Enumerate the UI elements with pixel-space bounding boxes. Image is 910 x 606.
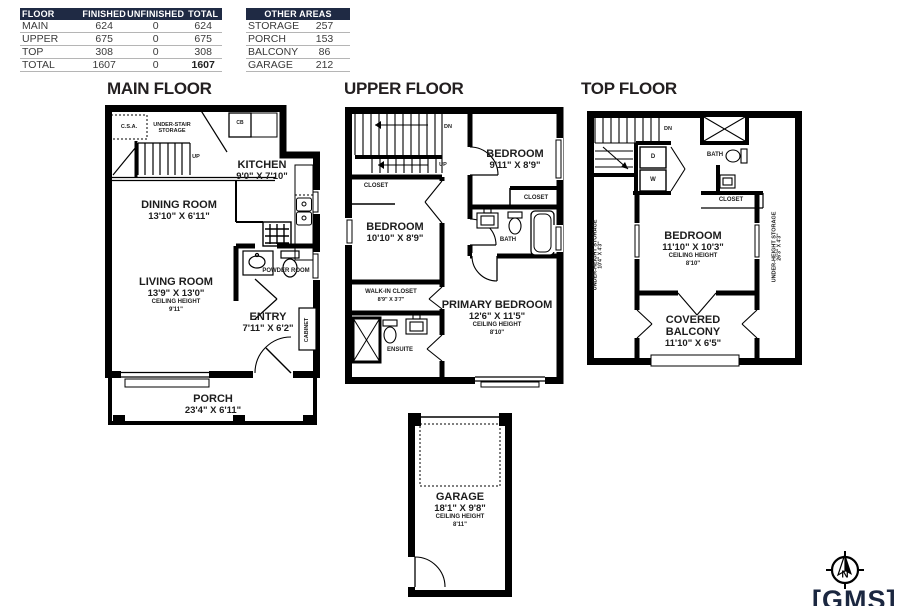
entry-name: ENTRY xyxy=(242,311,293,323)
cell: 308 xyxy=(81,46,127,58)
cell: 257 xyxy=(299,20,350,32)
walkin-name: WALK-IN CLOSET xyxy=(365,289,417,297)
storage-left-dims: 10'4" X 4'3" xyxy=(598,220,604,291)
cb-label: CB xyxy=(236,121,243,127)
dining-room-label: DINING ROOM 13'10" X 6'11" xyxy=(141,199,217,222)
bedroom-ceiling-value: 8'10" xyxy=(662,261,724,269)
col-floor: FLOOR xyxy=(20,9,81,19)
garage-ceiling-value: 8'11" xyxy=(434,522,486,530)
compass-n-label: N xyxy=(841,570,848,581)
table-row: TOP 308 0 308 xyxy=(20,46,222,59)
living-ceiling-value: 9'11" xyxy=(139,307,213,315)
up-label: UP xyxy=(192,154,200,160)
floor-plan-page: FLOOR FINISHED UNFINISHED TOTAL MAIN 624… xyxy=(0,0,910,606)
bedroom-dims: 11'10" X 10'3" xyxy=(662,242,724,253)
bedroom1-dims: 9'11" X 8'9" xyxy=(486,160,543,171)
entry-dims: 7'11" X 6'2" xyxy=(242,323,293,334)
living-ceiling-label: CEILING HEIGHT xyxy=(139,299,213,307)
stove xyxy=(263,222,291,246)
cell: GARAGE xyxy=(246,59,299,71)
balcony-name: COVERED BALCONY xyxy=(653,314,733,338)
garage-overhang xyxy=(420,424,500,486)
powder-room-label: POWDER ROOM xyxy=(262,268,309,276)
cell: 0 xyxy=(127,46,184,58)
table-row: BALCONY 86 xyxy=(246,46,350,59)
shower xyxy=(702,115,747,143)
table-row: PORCH 153 xyxy=(246,33,350,46)
closet-label: CLOSET xyxy=(719,197,743,205)
bedroom-ceiling-label: CEILING HEIGHT xyxy=(662,253,724,261)
cell: 212 xyxy=(299,59,350,71)
primary-dims: 12'6" X 11'5" xyxy=(442,311,553,322)
balcony-label: COVERED BALCONY 11'10" X 6'5" xyxy=(653,314,733,349)
cell: BALCONY xyxy=(246,46,299,58)
garage-name: GARAGE xyxy=(434,491,486,503)
cabinet-label: CABINET xyxy=(304,318,310,342)
balcony-steps xyxy=(651,355,739,366)
bedroom2-name: BEDROOM xyxy=(366,221,423,233)
understair-storage-label: UNDER-STAIR STORAGE xyxy=(146,122,198,134)
storage-right-dims: 26'3" X 4'3" xyxy=(777,212,783,283)
bedroom-label: BEDROOM 11'10" X 10'3" CEILING HEIGHT 8'… xyxy=(662,230,724,268)
dryer-label: D xyxy=(651,154,655,162)
main-floor-title: MAIN FLOOR xyxy=(107,79,212,99)
porch-name: PORCH xyxy=(185,393,241,405)
table-row: GARAGE 212 xyxy=(246,59,350,72)
cell: 153 xyxy=(299,33,350,45)
other-areas-header: OTHER AREAS xyxy=(246,8,350,20)
dn-label: DN xyxy=(444,124,452,130)
cell: 0 xyxy=(127,59,184,71)
ensuite-label: ENSUITE xyxy=(387,347,413,355)
cell: PORCH xyxy=(246,33,299,45)
top-floor-title: TOP FLOOR xyxy=(581,79,677,99)
bedroom1-name: BEDROOM xyxy=(486,148,543,160)
cell: 308 xyxy=(184,46,222,58)
balcony-dims: 11'10" X 6'5" xyxy=(653,338,733,349)
porch-label: PORCH 23'4" X 6'11" xyxy=(185,393,241,416)
bathtub xyxy=(531,211,554,255)
primary-ceiling-value: 8'10" xyxy=(442,330,553,338)
storage-left-label: UNDER-HEIGHT STORAGE 10'4" X 4'3" xyxy=(592,220,604,291)
cell: 0 xyxy=(127,33,184,45)
bath-label: BATH xyxy=(500,237,516,245)
other-areas-title: OTHER AREAS xyxy=(246,9,350,19)
gms-logo: [GMS] xyxy=(812,585,896,606)
garage-dims: 18'1" X 9'8" xyxy=(434,503,486,514)
storage-right-label: UNDER-HEIGHT STORAGE 26'3" X 4'3" xyxy=(771,212,783,283)
sink xyxy=(720,175,735,188)
upper-floor-title: UPPER FLOOR xyxy=(344,79,464,99)
bedroom2-dims: 10'10" X 8'9" xyxy=(366,233,423,244)
col-unfinished: UNFINISHED xyxy=(127,9,184,19)
garage-label: GARAGE 18'1" X 9'8" CEILING HEIGHT 8'11" xyxy=(434,491,486,529)
walkin-dims: 8'9" X 3'7" xyxy=(365,297,417,303)
up-label: UP xyxy=(439,162,447,168)
cell: 675 xyxy=(184,33,222,45)
closet-right-label: CLOSET xyxy=(524,195,548,203)
table-row: MAIN 624 0 624 xyxy=(20,20,222,33)
bedroom2-label: BEDROOM 10'10" X 8'9" xyxy=(366,221,423,244)
table-row: UPPER 675 0 675 xyxy=(20,33,222,46)
cell: 86 xyxy=(299,46,350,58)
kitchen-label: KITCHEN 9'0" X 7'10" xyxy=(236,159,288,182)
living-room-window xyxy=(121,369,209,387)
cell: 1607 xyxy=(184,59,222,71)
entry-label: ENTRY 7'11" X 6'2" xyxy=(242,311,293,334)
dn-label: DN xyxy=(664,126,672,132)
bedroom-name: BEDROOM xyxy=(662,230,724,242)
dining-dims: 13'10" X 6'11" xyxy=(141,211,217,222)
primary-ceiling-label: CEILING HEIGHT xyxy=(442,322,553,330)
bath-label: BATH xyxy=(707,152,723,160)
porch-dims: 23'4" X 6'11" xyxy=(185,405,241,416)
cell: 624 xyxy=(81,20,127,32)
cell: 624 xyxy=(184,20,222,32)
cell: TOTAL xyxy=(20,59,81,71)
cell: STORAGE xyxy=(246,20,299,32)
kitchen-name: KITCHEN xyxy=(236,159,288,171)
cell: TOP xyxy=(20,46,81,58)
col-finished: FINISHED xyxy=(81,9,127,19)
table-total-row: TOTAL 1607 0 1607 xyxy=(20,59,222,72)
garage-side-door xyxy=(407,557,445,587)
dining-name: DINING ROOM xyxy=(141,199,217,211)
cell: 675 xyxy=(81,33,127,45)
cell: UPPER xyxy=(20,33,81,45)
cell: 1607 xyxy=(81,59,127,71)
floor-area-table: FLOOR FINISHED UNFINISHED TOTAL MAIN 624… xyxy=(20,8,222,72)
other-areas-table: OTHER AREAS STORAGE 257 PORCH 153 BALCON… xyxy=(246,8,350,72)
living-name: LIVING ROOM xyxy=(139,276,213,288)
walkin-closet-label: WALK-IN CLOSET 8'9" X 3'7" xyxy=(365,289,417,303)
kitchen-dims: 9'0" X 7'10" xyxy=(236,171,288,182)
washer-label: W xyxy=(650,177,656,185)
table-row: STORAGE 257 xyxy=(246,20,350,33)
primary-bedroom-label: PRIMARY BEDROOM 12'6" X 11'5" CEILING HE… xyxy=(442,299,553,337)
closet-left-label: CLOSET xyxy=(364,183,388,191)
bedroom1-label: BEDROOM 9'11" X 8'9" xyxy=(486,148,543,171)
ensuite-shower xyxy=(353,318,380,362)
cell: 0 xyxy=(127,20,184,32)
living-dims: 13'9" X 13'0" xyxy=(139,288,213,299)
cell: MAIN xyxy=(20,20,81,32)
csa-label: C.S.A. xyxy=(121,124,137,130)
col-total: TOTAL xyxy=(184,9,222,19)
living-room-label: LIVING ROOM 13'9" X 13'0" CEILING HEIGHT… xyxy=(139,276,213,314)
garage-ceiling-label: CEILING HEIGHT xyxy=(434,514,486,522)
floor-area-table-header: FLOOR FINISHED UNFINISHED TOTAL xyxy=(20,8,222,20)
primary-name: PRIMARY BEDROOM xyxy=(442,299,553,311)
